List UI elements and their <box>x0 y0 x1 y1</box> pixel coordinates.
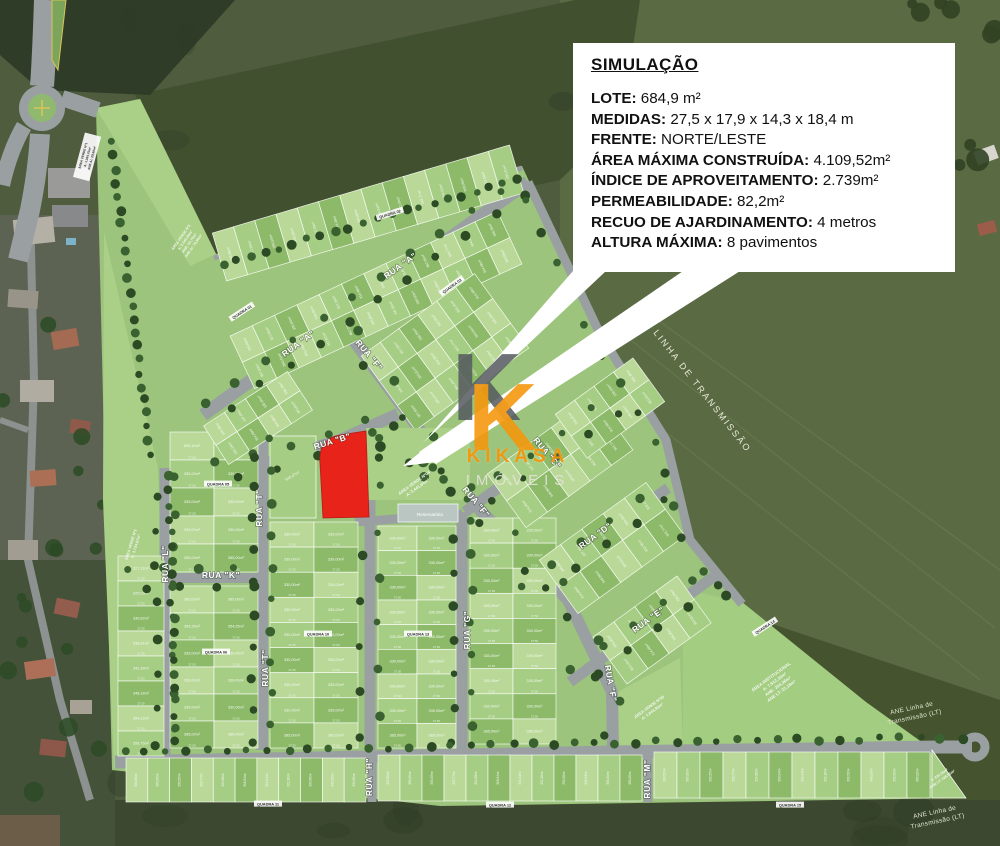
tree <box>518 583 526 591</box>
tree <box>498 179 505 186</box>
tree <box>154 670 161 677</box>
tree <box>468 742 475 749</box>
lot-area-label: 330,00m² <box>184 706 201 710</box>
lot-dim-label: 27,50 <box>138 677 145 681</box>
tree <box>677 533 686 542</box>
tree <box>111 166 120 175</box>
lot-dim-label: 27,50 <box>433 620 440 624</box>
lot-dim-label: 27,50 <box>138 727 145 731</box>
tree <box>346 744 352 750</box>
tree <box>918 734 924 740</box>
lot-dim-label: 27,50 <box>333 643 340 647</box>
tree <box>958 734 968 744</box>
tree <box>935 734 945 744</box>
tree <box>135 371 142 378</box>
lot-area-label: 323,77m² <box>732 768 736 781</box>
tree <box>224 748 231 755</box>
tree <box>276 246 282 252</box>
tree <box>250 706 258 714</box>
tree <box>228 404 236 412</box>
lot-dim-label: 27,50 <box>394 645 401 649</box>
lot-area-label: 385,00m² <box>526 729 543 733</box>
kikasa-logo: K K KIKASA IMÓVEIS <box>438 350 598 498</box>
tree <box>110 179 120 189</box>
street-name-label: RUA "M" <box>642 759 652 798</box>
tree <box>269 689 277 697</box>
tree <box>201 399 211 409</box>
tree <box>19 599 32 612</box>
lot-dim-label: 27,50 <box>488 564 495 568</box>
tree <box>288 362 295 369</box>
tree <box>250 644 257 651</box>
tree <box>232 256 240 264</box>
tree <box>580 321 588 329</box>
lot-dim-label: 27,50 <box>189 484 196 488</box>
tree <box>152 528 159 535</box>
lot-area-label: 330,00m² <box>328 558 345 562</box>
info-box-lines: LOTE: 684,9 m²MEDIDAS: 27,5 x 17,9 x 14,… <box>591 89 939 254</box>
lot-area-label: 330,00m² <box>526 554 543 558</box>
tree <box>169 529 176 536</box>
lot-area-label: 330,00m² <box>184 528 201 532</box>
tree <box>451 670 458 677</box>
lot-dim-label: 27,50 <box>189 512 196 516</box>
street-name-label: RUA "L" <box>160 545 170 582</box>
tree <box>635 494 644 503</box>
tree <box>468 207 475 214</box>
tree <box>402 205 412 215</box>
lot-dim-label: 27,50 <box>488 689 495 693</box>
quadra-label: QUADRA 15 <box>776 802 804 808</box>
quadra-label-text: QUADRA 10 <box>307 631 329 636</box>
lot-dim-label: 27,50 <box>433 645 440 649</box>
tree <box>966 148 989 171</box>
lot-dim-label: 27,50 <box>488 589 495 593</box>
tree <box>375 454 383 462</box>
street-name-label: RUA "T" <box>260 649 270 686</box>
lot-area-label: 330,00m² <box>483 679 500 683</box>
tree <box>263 747 270 754</box>
lot-area-label: 330,00m² <box>328 533 345 537</box>
tree <box>343 224 353 234</box>
tree <box>356 597 364 605</box>
simulation-info-box: SIMULAÇÃO LOTE: 684,9 m²MEDIDAS: 27,5 x … <box>573 43 955 272</box>
tree <box>486 740 494 748</box>
building <box>29 469 56 487</box>
lot-area-label: 330,00m² <box>483 579 500 583</box>
tree <box>498 188 505 195</box>
tree <box>181 747 190 756</box>
tree <box>345 317 355 327</box>
lot-area-label: 323,77m² <box>199 773 203 786</box>
lot-area-label: 322,16m² <box>540 771 544 784</box>
tree <box>358 551 368 561</box>
info-line: PERMEABILIDADE: 82,2m² <box>591 192 939 213</box>
tree <box>492 209 501 218</box>
quadra-label-text: QUADRA 11 <box>257 801 280 806</box>
tree <box>855 737 863 745</box>
tree <box>466 549 476 559</box>
lot-area-label: 330,00m² <box>389 709 406 713</box>
tree <box>73 428 90 445</box>
tree <box>250 453 259 462</box>
lot-area-label: 385,00m² <box>408 771 412 784</box>
quadra-label-text: QUADRA 06 <box>205 649 228 654</box>
lot-area-label: 343,93m² <box>584 771 588 784</box>
tree <box>165 503 172 510</box>
lot-dim-label: 27,50 <box>488 614 495 618</box>
lot-area-label: 330,00m² <box>284 583 301 587</box>
tree <box>170 670 179 679</box>
tree <box>16 636 27 647</box>
tree <box>468 586 477 595</box>
tree <box>683 602 693 612</box>
lot-area-label: 330,00m² <box>389 684 406 688</box>
tree <box>154 493 162 501</box>
lot-area-label: 330,00m² <box>483 629 500 633</box>
lot-dim-label: 27,50 <box>289 718 296 722</box>
lot-area-label: 330,00m² <box>284 683 301 687</box>
lot-area-label: 330,00m² <box>483 554 500 558</box>
tree <box>265 627 275 637</box>
tree <box>124 566 131 573</box>
tree <box>431 200 438 207</box>
tree <box>368 428 377 437</box>
lot-area-label: 330,00m² <box>328 708 345 712</box>
lot-area-label: 385,00m² <box>184 598 201 602</box>
quadra-label-text: QUADRA 12 <box>489 802 512 807</box>
tree <box>942 0 960 18</box>
tree <box>170 628 179 637</box>
tree <box>268 595 274 601</box>
tree <box>316 340 325 349</box>
street-name-label: RUA "G" <box>462 611 472 650</box>
tree <box>688 576 697 585</box>
lot-dim-label: 27,50 <box>233 636 240 640</box>
lot-area-label: 322,16m² <box>824 768 828 781</box>
lot-dim-label: 27,50 <box>333 593 340 597</box>
lot-area-label: 330,00m² <box>284 533 301 537</box>
lot-area-label: 385,00m² <box>228 733 245 737</box>
tree <box>594 669 604 679</box>
lot-block-bottom <box>378 755 642 801</box>
tree <box>405 744 414 753</box>
lot-dim-label: 27,50 <box>189 609 196 613</box>
lot-area-label: 330,00m² <box>184 652 201 656</box>
tree <box>131 329 140 338</box>
tree <box>162 748 168 754</box>
lot-dim-label: 27,50 <box>531 564 538 568</box>
lot-area-label: 330,00m² <box>228 652 245 656</box>
site-plan-screenshot: 327,11m²27,50325,03m²27,50330,82m²27,503… <box>0 0 1000 846</box>
lot-area-label: 330,50m² <box>352 773 356 786</box>
tree <box>91 741 107 757</box>
tree <box>610 740 619 749</box>
lot-area-label: 322,16m² <box>287 773 291 786</box>
tree <box>616 378 625 387</box>
tree <box>265 435 273 443</box>
tree <box>652 439 659 446</box>
tree <box>375 711 385 721</box>
tree <box>623 646 631 654</box>
lot-area-label: 330,00m² <box>284 558 301 562</box>
lot-area-label: 324,88m² <box>221 773 225 786</box>
tree <box>130 315 139 324</box>
tree <box>733 735 741 743</box>
lot-area-label: 330,50m² <box>663 768 667 781</box>
lot-area-label: 354,25m² <box>184 625 201 629</box>
lot-dim-label: 27,50 <box>394 596 401 600</box>
tree <box>660 496 667 503</box>
lot-area-label: 385,00m² <box>228 556 245 560</box>
lot-area-label: 336,61m² <box>133 642 150 646</box>
lot-area-label: 324,88m² <box>474 771 478 784</box>
lot-area-label: 318,54m² <box>243 773 247 786</box>
tree <box>269 564 278 573</box>
lot-area-label: 330,00m² <box>184 472 201 476</box>
tree <box>444 194 452 202</box>
tree <box>355 687 364 696</box>
lot-area-label: 324,88m² <box>755 768 759 781</box>
tree <box>356 643 363 650</box>
tree <box>256 380 264 388</box>
tree <box>348 293 356 301</box>
lot-area-label: 385,00m² <box>184 733 201 737</box>
lot-area-label: 385,00m² <box>184 556 201 560</box>
lot-area-label: 343,93m² <box>330 773 334 786</box>
tree <box>164 471 174 481</box>
lot-dim-label: 27,50 <box>531 589 538 593</box>
building <box>7 289 38 309</box>
tree <box>136 354 144 362</box>
lot-dim-label: 27,50 <box>189 717 196 721</box>
quadra-label-text: QUADRA 15 <box>779 802 802 807</box>
lot-area-label: 330,00m² <box>526 679 543 683</box>
lot-area-label: 330,00m² <box>428 536 445 540</box>
tree <box>166 599 174 607</box>
building <box>70 700 92 714</box>
lot-area-label: 330,00m² <box>526 604 543 608</box>
lot-dim-label: 27,50 <box>488 714 495 718</box>
tree <box>249 738 257 746</box>
lot-area-label: 330,00m² <box>526 704 543 708</box>
info-box-title: SIMULAÇÃO <box>591 55 939 75</box>
lot-dim-label: 27,50 <box>289 593 296 597</box>
lot-area-label: 330,00m² <box>389 586 406 590</box>
lot-dim-label: 27,50 <box>488 639 495 643</box>
tree <box>210 457 219 466</box>
tree <box>512 174 521 183</box>
tree <box>124 260 131 267</box>
tree <box>137 384 146 393</box>
lot-dim-label: 27,50 <box>531 539 538 543</box>
lot-area-label: 330,55m² <box>709 768 713 781</box>
lot-dim-label: 27,50 <box>289 568 296 572</box>
lot-dim-label: 27,50 <box>394 620 401 624</box>
logo-brand-name: KIKASA <box>438 446 598 468</box>
lot-dim-label: 27,50 <box>531 714 538 718</box>
tree <box>522 197 529 204</box>
tree <box>673 738 682 747</box>
street-name-label: RUA "H" <box>364 758 374 796</box>
tree <box>876 734 883 741</box>
building <box>39 739 67 758</box>
lot-dim-label: 27,50 <box>433 596 440 600</box>
tree <box>389 421 399 431</box>
lot-area-label: 323,77m² <box>452 771 456 784</box>
lot-area-label: 330,00m² <box>389 561 406 565</box>
tree <box>721 591 731 601</box>
lot-area-label: 330,50m² <box>134 773 138 786</box>
lot-dim-label: 27,50 <box>488 539 495 543</box>
tree <box>652 737 660 745</box>
lot-dim-label: 27,50 <box>233 512 240 516</box>
tree <box>90 542 102 554</box>
tree <box>171 724 179 732</box>
tree <box>24 782 44 802</box>
lot-area-label: 330,00m² <box>483 529 500 533</box>
lot-area-label: 330,00m² <box>483 654 500 658</box>
tree <box>602 539 611 548</box>
tree <box>243 747 250 754</box>
tree <box>653 623 662 632</box>
tree <box>536 228 546 238</box>
tree <box>153 597 162 606</box>
lot-area-label: 330,00m² <box>328 608 345 612</box>
street-name-label: RUA "T" <box>254 489 264 526</box>
info-line: ALTURA MÁXIMA: 8 pavimentos <box>591 233 939 254</box>
lot-dim-label: 27,50 <box>433 571 440 575</box>
tree <box>631 739 640 748</box>
lot-area-label: 330,00m² <box>228 528 245 532</box>
lot-area-label: 385,00m² <box>228 598 245 602</box>
tree <box>324 745 332 753</box>
tree <box>315 231 324 240</box>
lot-dim-label: 27,50 <box>433 719 440 723</box>
tree <box>171 695 179 703</box>
tree <box>484 183 492 191</box>
lot-area-label: 318,54m² <box>778 768 782 781</box>
tree <box>457 192 466 201</box>
tree <box>429 463 437 471</box>
tree <box>591 739 598 746</box>
tree <box>147 452 154 459</box>
lot-area-label: 330,00m² <box>428 684 445 688</box>
lot-dim-label: 27,50 <box>138 702 145 706</box>
lot-area-label: 330,00m² <box>328 583 345 587</box>
lot-area-label: 385,00m² <box>284 733 301 737</box>
lot-block-bottom <box>654 752 930 798</box>
tree <box>170 656 178 664</box>
tree <box>170 614 176 620</box>
lot-dim-label: 27,50 <box>488 664 495 668</box>
tree <box>204 745 212 753</box>
lot-dim-label: 27,50 <box>289 668 296 672</box>
lot-area-label: 330,00m² <box>428 610 445 614</box>
lot-dim-label: 27,50 <box>394 694 401 698</box>
tree <box>171 510 180 519</box>
lot-area-label: 319,41m² <box>518 771 522 784</box>
field-texture <box>177 21 196 55</box>
tree <box>774 735 782 743</box>
lot-area-label: 330,00m² <box>184 679 201 683</box>
tree <box>911 3 930 22</box>
tree <box>143 423 149 429</box>
lot-dim-label: 27,50 <box>333 618 340 622</box>
tree <box>415 204 422 211</box>
lot-area-label: 330,56m² <box>562 771 566 784</box>
tree <box>389 376 399 386</box>
lot-block <box>170 586 258 748</box>
tree <box>142 436 152 446</box>
info-line: RECUO DE AJARDINAMENTO: 4 metros <box>591 213 939 234</box>
tree <box>693 737 702 746</box>
lot-dim-label: 27,50 <box>531 639 538 643</box>
lot-dim-label: 27,50 <box>233 663 240 667</box>
lot-area-label: 385,00m² <box>428 734 445 738</box>
lot-area-label: 330,00m² <box>526 529 543 533</box>
tree <box>553 259 561 267</box>
tree <box>374 619 381 626</box>
tree <box>448 534 457 543</box>
tree <box>599 642 607 650</box>
info-line: ÁREA MÁXIMA CONSTRUÍDA: 4.109,52m² <box>591 151 939 172</box>
logo-brand-tagline: IMÓVEIS <box>438 472 598 489</box>
lot-dim-label: 27,50 <box>233 609 240 613</box>
lot-dim-label: 27,50 <box>394 670 401 674</box>
lot-area-label: 330,00m² <box>228 706 245 710</box>
tree <box>512 529 519 536</box>
tree <box>359 361 368 370</box>
tree <box>699 567 707 575</box>
lot-dim-label: 27,50 <box>531 689 538 693</box>
tree <box>468 689 474 695</box>
lot-dim-label: 27,50 <box>394 546 401 550</box>
lot-dim-label: 27,50 <box>333 568 340 572</box>
info-line: ÍNDICE DE APROVEITAMENTO: 2.739m² <box>591 171 939 192</box>
tree <box>267 499 277 509</box>
tree <box>140 394 149 403</box>
lot-area-label: 330,00m² <box>389 635 406 639</box>
building <box>8 540 38 560</box>
tree <box>230 378 240 388</box>
lot-area-label: 330,00m² <box>389 536 406 540</box>
lot-area-label: 330,00m² <box>428 709 445 713</box>
tree <box>600 731 608 739</box>
lot-dim-label: 27,50 <box>289 643 296 647</box>
tree <box>713 738 719 744</box>
tree <box>542 584 549 591</box>
tree <box>375 434 383 442</box>
lot-area-label: 330,00m² <box>228 679 245 683</box>
tree <box>474 189 481 196</box>
lot-area-label: 359,76m² <box>133 742 150 746</box>
lot-dim-label: 27,50 <box>289 618 296 622</box>
lot-area-label: 330,00m² <box>328 658 345 662</box>
quadra-label: QUADRA 11 <box>254 801 282 807</box>
tree <box>0 662 17 680</box>
quadra-label: QUADRA 10 <box>304 631 332 637</box>
lot-area-label: 385,00m² <box>916 768 920 781</box>
lot-dim-label: 27,50 <box>333 693 340 697</box>
lot-area-label: 330,55m² <box>178 773 182 786</box>
tree <box>374 665 383 674</box>
lot-area-label: 330,00m² <box>389 660 406 664</box>
tree <box>461 231 471 241</box>
tree <box>247 674 256 683</box>
lot-area-label: 330,50m² <box>893 768 897 781</box>
lot-area-label: 330,50m² <box>386 771 390 784</box>
